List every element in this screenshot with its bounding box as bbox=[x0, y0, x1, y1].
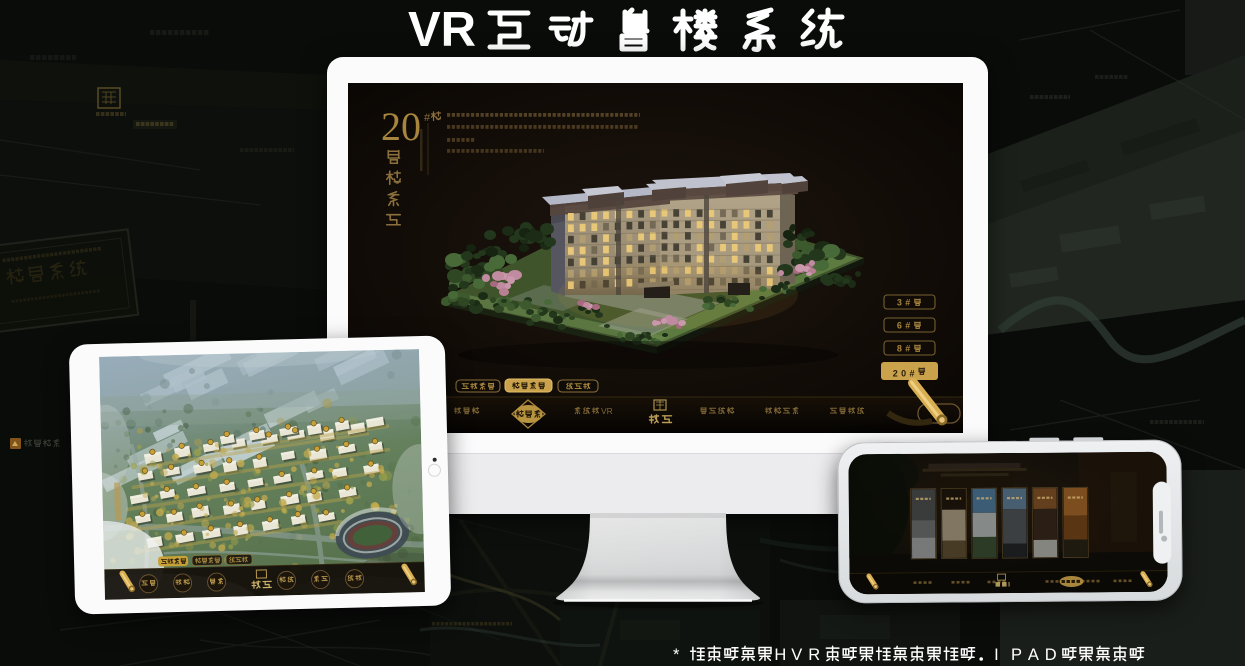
svg-text:I: I bbox=[994, 646, 999, 664]
svg-text:D: D bbox=[1045, 646, 1057, 664]
svg-text:R: R bbox=[808, 646, 820, 664]
svg-text:V: V bbox=[791, 646, 802, 664]
svg-text:*: * bbox=[673, 646, 680, 664]
svg-text:P: P bbox=[1011, 646, 1022, 664]
svg-text:A: A bbox=[1028, 646, 1039, 664]
svg-text:H: H bbox=[774, 646, 786, 664]
